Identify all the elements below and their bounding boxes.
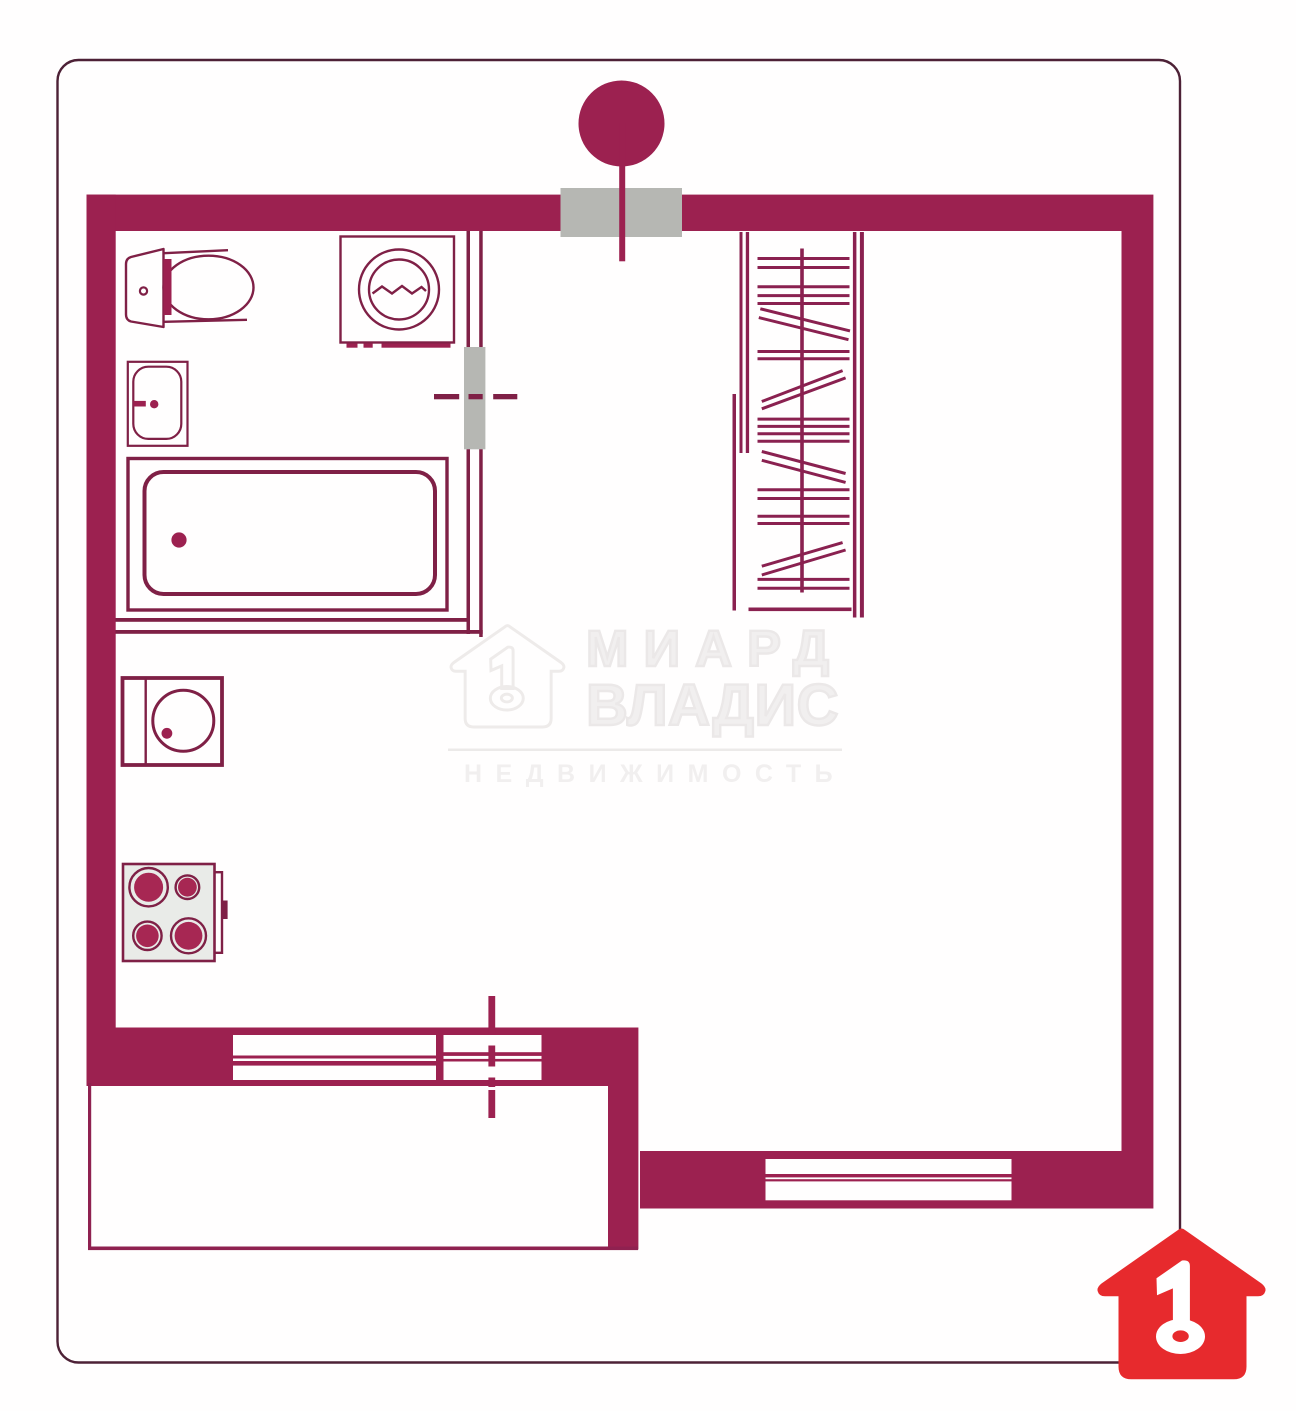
svg-text:НЕДВИЖИМОСТЬ: НЕДВИЖИМОСТЬ [464,760,846,788]
svg-text:ВЛАДИС: ВЛАДИС [586,673,839,738]
svg-text:МИАРД: МИАРД [586,620,844,677]
